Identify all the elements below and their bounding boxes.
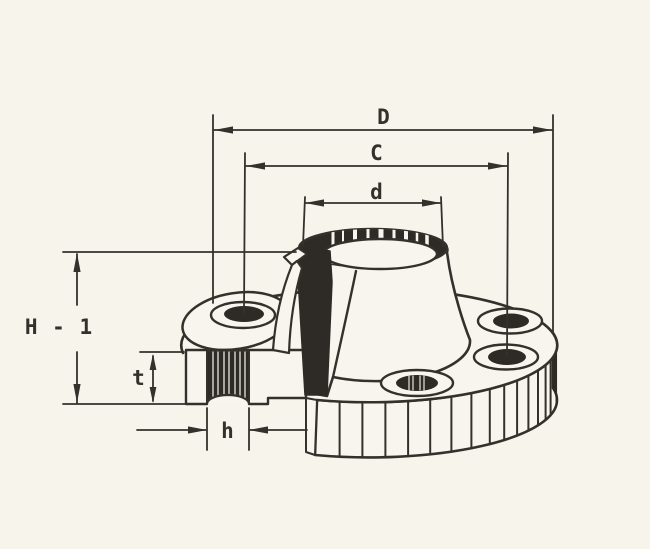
arrowhead-left <box>214 126 233 133</box>
arrowhead-right <box>488 162 507 169</box>
bolt-hole-right-lower <box>474 345 538 370</box>
drawing-canvas: D C d H - 1 <box>0 0 650 549</box>
arrowhead-right <box>533 126 552 133</box>
dim-label-H1: H - 1 <box>25 315 93 339</box>
flange-body <box>178 228 557 457</box>
arrowhead-right <box>188 426 207 433</box>
dim-label-h: h <box>221 419 235 443</box>
dimension-h: h <box>137 408 307 450</box>
dim-label-D: D <box>377 105 391 129</box>
arrowhead-up <box>73 253 80 272</box>
plate-section-face <box>186 350 317 455</box>
bolt-hole-right-upper <box>478 309 542 334</box>
arrowhead-left <box>246 162 265 169</box>
arrowhead-down <box>73 384 80 403</box>
arrowhead-left <box>305 199 324 206</box>
bolt-hole-rear-left <box>211 302 275 328</box>
flange-technical-drawing: D C d H - 1 <box>0 0 650 549</box>
arrowhead-down <box>150 387 157 403</box>
arrowhead-left <box>249 426 268 433</box>
dimension-t: t <box>132 352 184 403</box>
dim-label-t: t <box>132 366 146 390</box>
bolt-hole-section <box>207 351 249 404</box>
arrowhead-up <box>150 354 157 370</box>
bolt-hole-front-center <box>381 370 453 396</box>
bore-inner-lip <box>323 239 437 269</box>
dim-label-C: C <box>370 141 384 165</box>
arrowhead-right <box>422 199 441 206</box>
dim-label-d: d <box>370 180 384 204</box>
